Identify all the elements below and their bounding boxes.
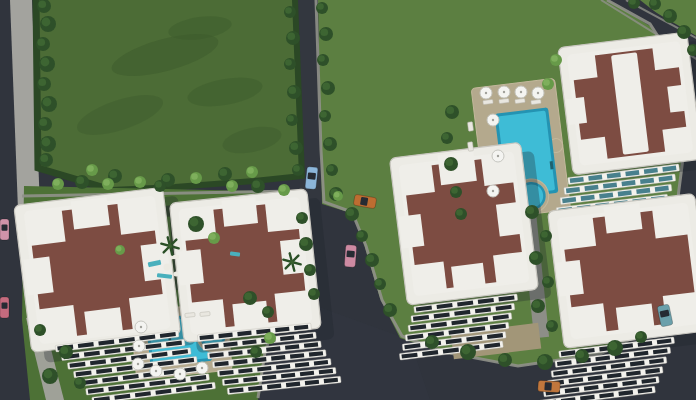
tree	[246, 166, 258, 178]
car-glass	[2, 224, 8, 230]
roof-inset	[652, 43, 681, 70]
pool-umbrella	[480, 87, 492, 99]
car-glass	[544, 382, 552, 390]
roof-inset	[451, 263, 486, 290]
tree	[455, 208, 467, 220]
pool-umbrella	[196, 362, 208, 374]
playground-equipment	[164, 264, 171, 271]
tree	[278, 184, 290, 196]
palm-center	[168, 244, 172, 248]
umbrella-pole	[140, 326, 142, 328]
tree	[308, 288, 320, 300]
tree-highlight	[543, 79, 550, 86]
tree-highlight	[462, 346, 471, 355]
tree-highlight	[320, 28, 328, 36]
tree-highlight	[526, 206, 534, 214]
tree-highlight	[551, 55, 558, 62]
tree-highlight	[543, 277, 550, 284]
tree-highlight	[309, 289, 316, 296]
tree	[460, 344, 476, 360]
tree-highlight	[318, 55, 325, 62]
tree	[86, 164, 98, 176]
tree-highlight	[39, 118, 47, 126]
pool-umbrella	[487, 114, 499, 126]
umbrella-pole	[492, 119, 494, 121]
roof-inset	[556, 260, 584, 297]
pool-umbrella	[532, 87, 544, 99]
tree	[115, 245, 125, 255]
tree-highlight	[320, 111, 327, 118]
tree	[74, 377, 86, 389]
tree	[34, 324, 46, 336]
tree	[537, 354, 553, 370]
tree-highlight	[44, 370, 53, 379]
tree	[575, 349, 589, 363]
car-blue	[305, 166, 318, 189]
umbrella-pole	[537, 92, 539, 94]
pool-umbrella	[515, 86, 527, 98]
umbrella-pole	[485, 92, 487, 94]
aerial-render	[0, 0, 696, 400]
tree	[550, 54, 562, 66]
tree-highlight	[290, 142, 298, 150]
tree	[323, 137, 337, 151]
tree-highlight	[87, 165, 94, 172]
tree	[529, 251, 543, 265]
tree-highlight	[191, 173, 198, 180]
tree	[188, 216, 204, 232]
tree-highlight	[346, 208, 354, 216]
pool-umbrella	[132, 358, 144, 370]
roof-inset	[566, 97, 587, 125]
roof-inset	[117, 198, 157, 235]
tree	[262, 306, 274, 318]
roof-inset	[559, 216, 596, 250]
tree-highlight	[42, 138, 51, 147]
tree-highlight	[384, 304, 392, 312]
tree	[531, 299, 545, 313]
tree	[40, 16, 56, 32]
tree	[425, 335, 439, 349]
car-red-left-bottom	[0, 297, 9, 318]
roof-inset	[274, 290, 310, 323]
sun-lounger	[185, 312, 195, 317]
tree-highlight	[42, 18, 51, 27]
umbrella-pole	[179, 373, 181, 375]
tree	[546, 320, 558, 332]
pool-umbrella	[498, 86, 510, 98]
tree-highlight	[327, 165, 334, 172]
tree	[154, 180, 166, 192]
tree-highlight	[219, 168, 227, 176]
tree-highlight	[244, 292, 252, 300]
roof-inset	[84, 307, 123, 337]
sun-lounger	[467, 142, 473, 152]
palm-center	[290, 260, 294, 264]
tree-highlight	[247, 167, 254, 174]
tree-highlight	[227, 181, 234, 188]
tree	[326, 164, 338, 176]
roof-inset	[652, 205, 689, 239]
tree-highlight	[426, 336, 434, 344]
tree	[304, 264, 316, 276]
tree	[52, 178, 64, 190]
car-glass	[360, 197, 368, 206]
sun-lounger	[515, 98, 525, 103]
tree	[319, 110, 331, 122]
pool-umbrella	[133, 340, 145, 352]
roof-inset	[569, 303, 606, 337]
tree	[542, 276, 554, 288]
tree	[134, 176, 146, 188]
pool-umbrella	[135, 321, 147, 333]
tree	[37, 77, 51, 91]
umbrella-pole	[138, 345, 140, 347]
roof-inset	[569, 53, 598, 80]
car-orange-bottom	[538, 380, 561, 393]
tree-highlight	[116, 246, 122, 252]
tree	[299, 237, 313, 251]
tree	[286, 31, 300, 45]
tree	[292, 164, 304, 176]
field-grass	[34, 0, 303, 190]
roof-inset	[604, 203, 643, 233]
tree	[635, 331, 647, 343]
tree	[284, 58, 296, 70]
tree-highlight	[445, 158, 453, 166]
sun-lounger	[483, 99, 493, 104]
roof-inset	[616, 303, 655, 331]
tree	[39, 56, 55, 72]
tree	[102, 178, 114, 190]
tree	[445, 105, 459, 119]
roof-inset	[399, 214, 425, 248]
tree	[383, 303, 397, 317]
tree-highlight	[75, 378, 82, 385]
car-glass	[346, 250, 354, 257]
roof-inset	[413, 262, 447, 295]
tree	[190, 172, 202, 184]
tree-highlight	[305, 265, 312, 272]
umbrella-pole	[503, 91, 505, 93]
roof-inset	[71, 197, 110, 229]
tree-highlight	[162, 174, 170, 182]
tree-highlight	[499, 354, 507, 362]
tree-highlight	[293, 165, 300, 172]
tree-highlight	[541, 231, 548, 238]
tree-highlight	[35, 325, 42, 332]
pool-umbrella	[487, 185, 499, 197]
tree	[251, 179, 265, 193]
tree-highlight	[252, 180, 260, 188]
tree	[321, 81, 335, 95]
car-pink-mid	[344, 245, 357, 268]
tree	[40, 136, 56, 152]
tree-highlight	[366, 254, 374, 262]
umbrella-pole	[492, 190, 494, 192]
tree-highlight	[288, 86, 296, 94]
umbrella-pole	[201, 367, 203, 369]
tree	[345, 207, 359, 221]
roof-inset	[177, 249, 204, 285]
roof-inset	[265, 199, 301, 232]
tree-highlight	[279, 185, 286, 192]
umbrella-pole	[137, 363, 139, 365]
tree-highlight	[451, 187, 458, 194]
pool-umbrella	[492, 150, 504, 162]
tree	[39, 153, 53, 167]
tree	[450, 186, 462, 198]
tree	[41, 96, 57, 112]
tree	[296, 212, 308, 224]
tree	[540, 230, 552, 242]
sun-lounger	[467, 122, 473, 132]
tree	[498, 353, 512, 367]
pool-umbrella	[150, 365, 162, 377]
umbrella-pole	[497, 155, 499, 157]
tree	[286, 114, 298, 126]
tree	[38, 117, 52, 131]
tree-highlight	[636, 332, 643, 339]
tree	[444, 157, 458, 171]
tree-highlight	[251, 347, 258, 354]
tree-highlight	[664, 10, 672, 18]
tree-highlight	[109, 170, 117, 178]
tree	[525, 205, 539, 219]
umbrella-pole	[155, 370, 157, 372]
tree-highlight	[334, 192, 340, 198]
tree-highlight	[576, 350, 584, 358]
tree-highlight	[539, 356, 548, 365]
tree-highlight	[547, 321, 554, 328]
roof-inset	[496, 202, 522, 236]
tree-highlight	[135, 177, 142, 184]
tree-highlight	[103, 179, 110, 186]
sun-lounger	[200, 311, 210, 316]
tree-highlight	[43, 98, 52, 107]
tree-highlight	[287, 115, 294, 122]
tree-highlight	[456, 209, 463, 216]
tree-highlight	[324, 138, 332, 146]
roof-inset	[667, 85, 686, 113]
car-glass	[2, 302, 8, 308]
roof-inset	[579, 137, 608, 164]
tree-highlight	[530, 252, 538, 260]
tree	[59, 345, 73, 359]
tree	[289, 141, 303, 155]
tree	[441, 132, 453, 144]
tree	[218, 167, 232, 181]
car-pink-left-top	[0, 219, 9, 240]
tree	[663, 9, 677, 23]
tree	[365, 253, 379, 267]
tree-highlight	[375, 279, 382, 286]
roof-inset	[38, 305, 78, 342]
tree-highlight	[53, 179, 60, 186]
tree	[250, 346, 262, 358]
tree-highlight	[37, 38, 45, 46]
tree-highlight	[446, 106, 454, 114]
umbrella-pole	[520, 91, 522, 93]
tree-highlight	[678, 26, 686, 34]
tree-highlight	[297, 213, 304, 220]
tree-highlight	[317, 3, 324, 10]
aerial-view-canvas	[0, 0, 696, 400]
tree-highlight	[60, 346, 68, 354]
tree	[356, 230, 368, 242]
tree-highlight	[209, 233, 216, 240]
tree-highlight	[357, 231, 364, 238]
tree-highlight	[38, 78, 46, 86]
tree	[287, 85, 301, 99]
tree	[243, 291, 257, 305]
playground-equipment	[174, 272, 179, 277]
car-glass	[307, 172, 316, 179]
tree-highlight	[285, 7, 292, 14]
tree-highlight	[609, 342, 618, 351]
tree	[317, 54, 329, 66]
tree-highlight	[300, 238, 308, 246]
tree	[333, 191, 343, 201]
tree	[75, 175, 89, 189]
tree	[607, 340, 623, 356]
playground-equipment	[170, 255, 179, 260]
roof-inset	[26, 209, 66, 246]
tree	[36, 37, 50, 51]
sun-lounger	[499, 98, 509, 103]
tree-highlight	[442, 133, 449, 140]
roof-inset	[662, 127, 691, 154]
roof-inset	[437, 151, 476, 185]
tree	[316, 2, 328, 14]
tree	[374, 278, 386, 290]
tree-highlight	[532, 300, 540, 308]
tree-highlight	[287, 32, 295, 40]
tree-highlight	[322, 82, 330, 90]
tree-highlight	[76, 176, 84, 184]
empty-field	[34, 0, 303, 190]
sun-lounger	[531, 99, 541, 104]
tree	[677, 25, 691, 39]
tree	[42, 368, 58, 384]
tree-highlight	[40, 154, 48, 162]
tree-highlight	[38, 0, 46, 8]
tree	[319, 27, 333, 41]
tree-highlight	[263, 307, 270, 314]
tree	[284, 6, 296, 18]
tree	[226, 180, 238, 192]
tree-highlight	[265, 333, 272, 340]
tree-highlight	[190, 218, 199, 227]
roof-inset	[23, 257, 53, 296]
tree	[542, 78, 554, 90]
tree	[264, 332, 276, 344]
pool-umbrella	[174, 368, 186, 380]
tree-highlight	[285, 59, 292, 66]
roof-inset	[221, 197, 258, 226]
tree-highlight	[155, 181, 162, 188]
roof-inset	[493, 252, 527, 285]
tree-highlight	[41, 58, 50, 67]
tree	[208, 232, 220, 244]
roof-inset	[401, 163, 435, 196]
tree-highlight	[688, 45, 695, 52]
